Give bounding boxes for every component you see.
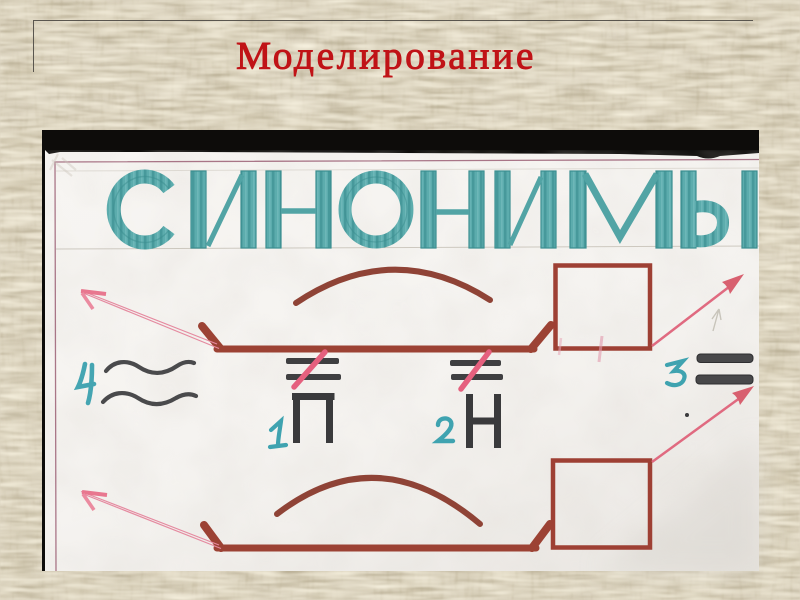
svg-text:Моделирование: Моделирование [236,34,536,78]
